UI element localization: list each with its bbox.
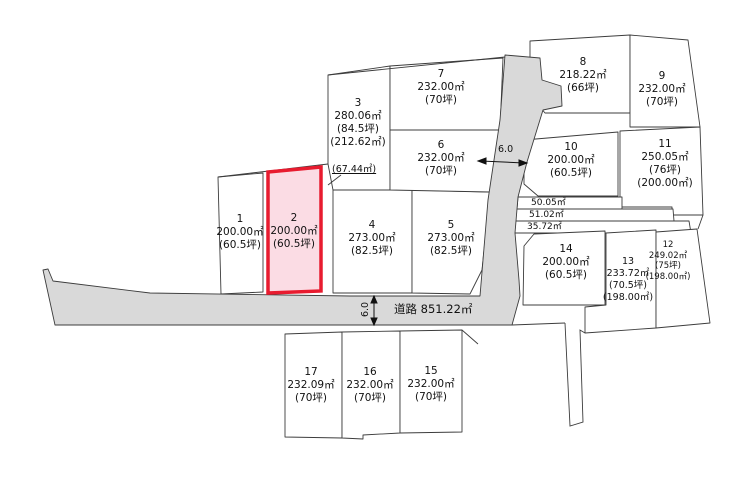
road-width-top-label: 6.0 bbox=[498, 144, 513, 155]
boundary-right bbox=[698, 215, 703, 229]
lot-15-label: 15232.00㎡(70坪) bbox=[407, 365, 454, 404]
lot-3-label: 3280.06㎡(84.5坪)(212.62㎡) bbox=[330, 97, 385, 149]
lot-2-label: 2200.00㎡(60.5坪) bbox=[270, 212, 317, 251]
road-label: 道路 851.22㎡ bbox=[394, 301, 472, 317]
lot-13-label: 13233.72㎡(70.5坪)(198.00㎡) bbox=[603, 256, 653, 304]
lot-14-label: 14200.00㎡(60.5坪) bbox=[542, 243, 589, 282]
lot-6-label: 6232.00㎡(70坪) bbox=[417, 139, 464, 178]
lot-5-label: 5273.00㎡(82.5坪) bbox=[427, 219, 474, 258]
strip-51-label: 51.02㎡ bbox=[529, 210, 564, 221]
lot-subdivision-plan: 1200.00㎡(60.5坪) 2200.00㎡(60.5坪) 3280.06㎡… bbox=[0, 0, 750, 479]
lot-17-label: 17232.09㎡(70坪) bbox=[287, 366, 334, 405]
lot-1-label: 1200.00㎡(60.5坪) bbox=[216, 213, 263, 252]
lot-10-label: 10200.00㎡(60.5坪) bbox=[547, 141, 594, 180]
lot-9-label: 9232.00㎡(70坪) bbox=[638, 70, 685, 109]
lot-11-label: 11250.05㎡(76坪)(200.00㎡) bbox=[637, 138, 692, 190]
strip-35-label: 35.72㎡ bbox=[527, 222, 562, 233]
road-width-bottom-label: 6.0 bbox=[360, 302, 371, 317]
boundary-road-end bbox=[512, 323, 565, 325]
lot-16-label: 16232.00㎡(70坪) bbox=[346, 366, 393, 405]
boundary-sliver bbox=[565, 323, 585, 426]
lot-4-label: 4273.00㎡(82.5坪) bbox=[348, 219, 395, 258]
lot-8-label: 8218.22㎡(66坪) bbox=[559, 56, 606, 95]
area-note-label: (67.44㎡) bbox=[332, 161, 376, 175]
boundary-bottom-cut bbox=[462, 330, 478, 344]
lot-7-label: 7232.00㎡(70坪) bbox=[417, 68, 464, 107]
strip-50-label: 50.05㎡ bbox=[531, 198, 566, 209]
